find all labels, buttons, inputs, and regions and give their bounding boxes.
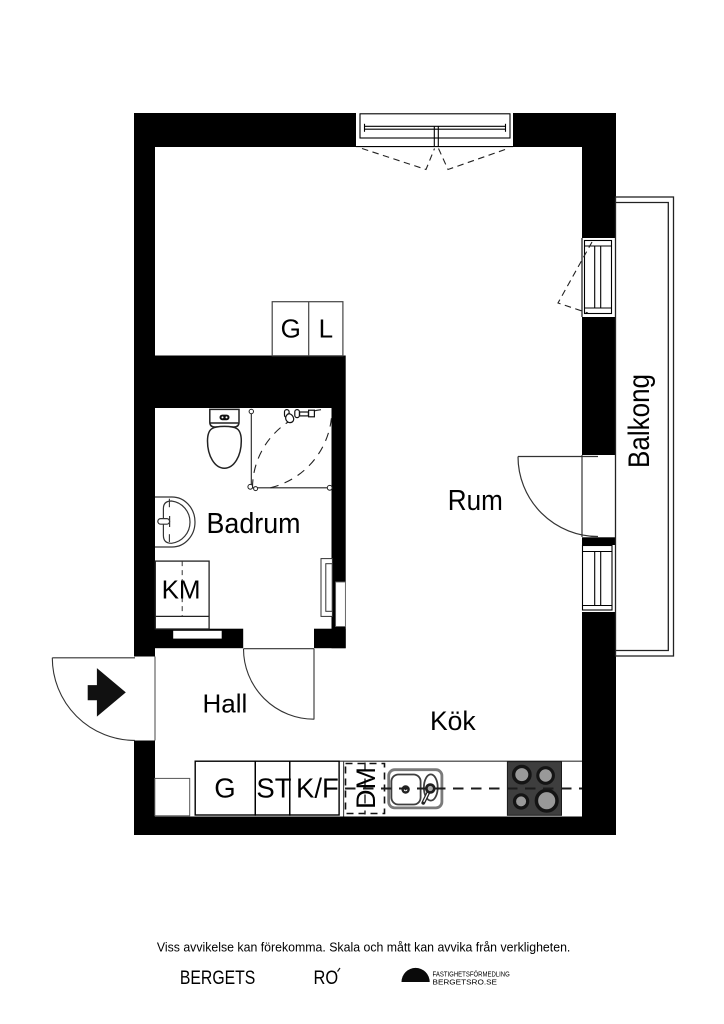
svg-text:Viss avvikelse kan förekomma.: Viss avvikelse kan förekomma. Skala och …	[157, 941, 571, 955]
svg-text:Kök: Kök	[430, 706, 476, 736]
svg-text:L: L	[319, 314, 333, 344]
svg-text:Badrum: Badrum	[207, 508, 301, 540]
svg-text:G: G	[214, 773, 235, 804]
svg-text:G: G	[281, 314, 301, 344]
svg-text:ST: ST	[256, 773, 291, 804]
svg-text:Balkong: Balkong	[623, 374, 656, 468]
svg-text:K/F: K/F	[296, 773, 339, 804]
svg-text:RO: RO	[314, 968, 339, 989]
svg-text:BERGETS: BERGETS	[180, 968, 255, 989]
svg-text:BERGETSRO.SE: BERGETSRO.SE	[433, 980, 498, 987]
svg-text:Rum: Rum	[448, 485, 503, 517]
svg-text:KM: KM	[162, 575, 201, 605]
svg-text:Hall: Hall	[203, 689, 248, 719]
svg-text:FASTIGHETSFÖRMEDLING: FASTIGHETSFÖRMEDLING	[433, 970, 510, 978]
